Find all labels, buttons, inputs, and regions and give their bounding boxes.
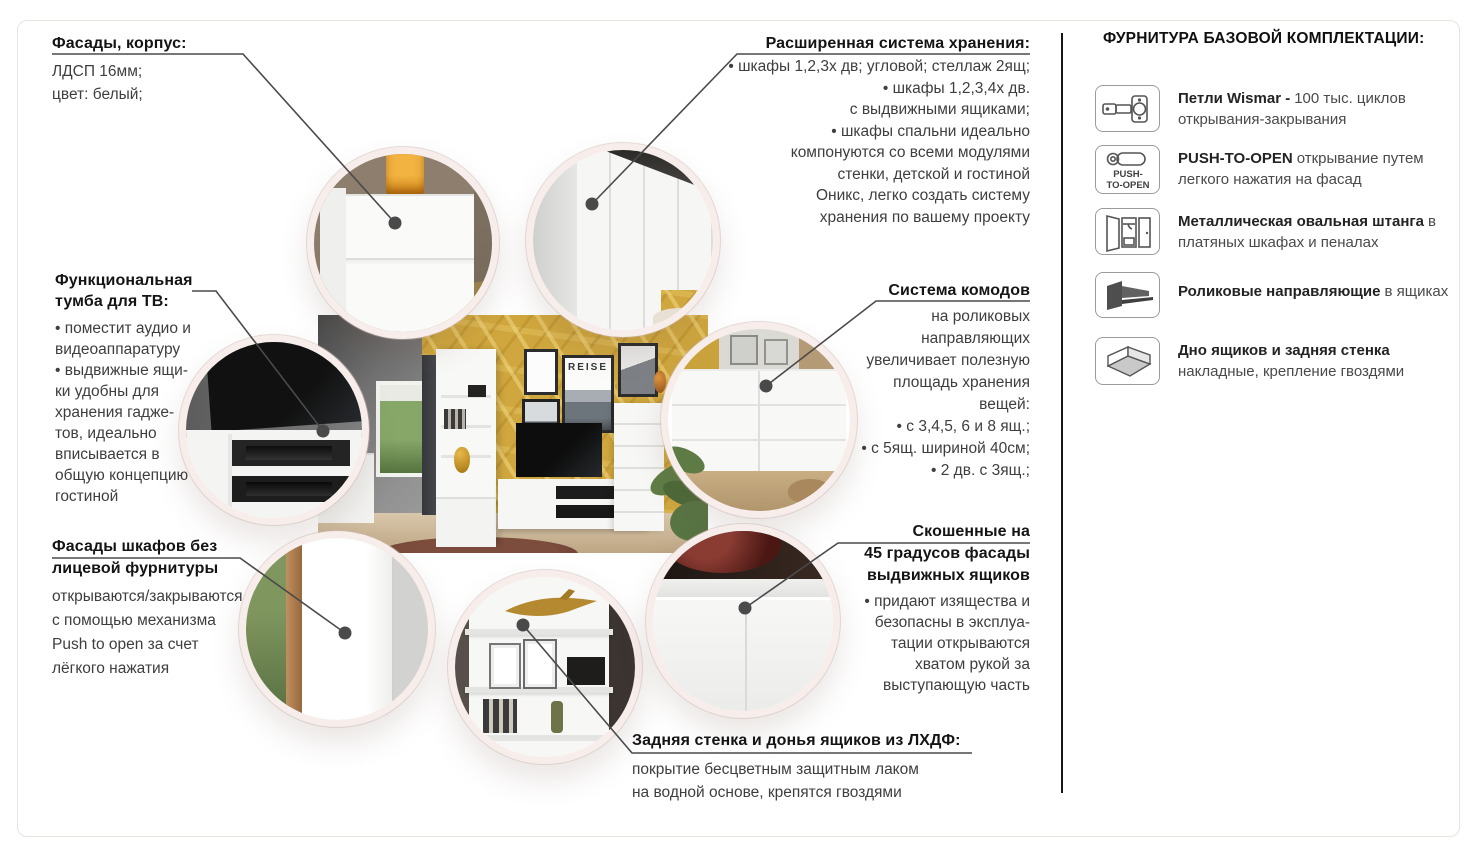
- callout-text-line: ЛДСП 16мм;: [52, 60, 302, 83]
- c1-right-edge: [474, 154, 492, 332]
- c1-side-panel: [320, 188, 346, 332]
- callout-text-line: вписывается в: [55, 444, 240, 465]
- c6-books: [483, 699, 517, 733]
- facade-detail-circle: [307, 147, 499, 339]
- panel-item-rollers: Роликовые направляющиев ящиках: [1178, 281, 1466, 302]
- callout-beveled: Скошенные на 45 градусов фасады выдвижны…: [800, 521, 1030, 696]
- photo-window: [376, 381, 428, 477]
- push-icon-label-1: PUSH-: [1113, 169, 1143, 180]
- callout-push-title-2: лицевой фурнитуры: [52, 558, 287, 580]
- poster-small-1: [524, 349, 558, 395]
- c4-basket: [788, 479, 832, 503]
- panel-item-drawer-bottom: Дно ящиков и задняя стенканакладные, кре…: [1178, 340, 1466, 382]
- callout-text-line: • придают изящества и: [800, 591, 1030, 612]
- c1-dresser-front: [346, 194, 474, 334]
- c6-green-bottle: [551, 701, 563, 733]
- callout-text-line: открываются/закрываются: [52, 585, 287, 609]
- c2-wall: [533, 150, 577, 330]
- panel-item-bold: Роликовые направляющие: [1178, 283, 1381, 300]
- photo-tv: [516, 423, 602, 477]
- photo-bookshelf: [436, 349, 496, 545]
- callout-text-line: тов, идеально: [55, 423, 240, 444]
- drawer-bottom-icon: [1095, 337, 1160, 385]
- callout-text-line: стенки, детской и гостиной: [690, 164, 1030, 186]
- poster-reise: REISE: [562, 355, 614, 433]
- bookshelf-drawers: [436, 497, 496, 547]
- c1-amber-vase: [386, 150, 424, 196]
- callout-text-line: Push to open за счет: [52, 633, 287, 657]
- c5-door: [302, 538, 394, 720]
- photo-pampas-vase: [654, 371, 666, 393]
- callout-text-line: с помощью механизма: [52, 609, 287, 633]
- c4-frame-1: [730, 335, 758, 365]
- callout-storage-title: Расширенная система хранения:: [690, 33, 1030, 54]
- callout-text-line: на роликовых: [770, 306, 1030, 328]
- callout-tv-title-2: тумба для ТВ:: [55, 291, 240, 312]
- c6-shelf-c: [465, 735, 613, 741]
- callout-push-fronts: Фасады шкафов без лицевой фурнитуры откр…: [52, 536, 287, 681]
- panel-divider: [1061, 33, 1063, 793]
- photo-tall-chest: [614, 403, 664, 531]
- callout-commodes: Система комодов на роликовых направляющи…: [770, 280, 1030, 482]
- callout-text-line: • шкафы 1,2,3х дв; угловой; стеллаж 2ящ;: [690, 56, 1030, 78]
- callout-storage: Расширенная система хранения: • шкафы 1,…: [690, 33, 1030, 228]
- shelf-books: [444, 409, 466, 429]
- c6-dark-left: [455, 577, 469, 757]
- callout-text-line: направляющих: [770, 328, 1030, 350]
- callout-text-line: лёгкого нажатия: [52, 657, 287, 681]
- callout-beveled-title-1: Скошенные на: [800, 521, 1030, 543]
- callout-facades: Фасады, корпус: ЛДСП 16мм; цвет: белый;: [52, 33, 302, 106]
- panel-item-hinges: Петли Wismar -100 тыс. циклов открывания…: [1178, 88, 1466, 130]
- c3-shelf-1: [232, 440, 350, 466]
- c5-door-seam: [392, 538, 394, 720]
- gold-airplane-figurine: [499, 585, 603, 627]
- panel-item-push-to-open: PUSH-TO-OPENоткрывание путем легкого наж…: [1178, 148, 1466, 190]
- wardrobe-rod-icon: [1095, 208, 1160, 255]
- panel-item-rest: накладные, крепление гвоздями: [1178, 363, 1404, 380]
- callout-tv: Функциональная тумба для ТВ: • поместит …: [55, 270, 240, 507]
- callout-text-line: • 2 дв. с 3ящ.;: [770, 460, 1030, 482]
- callout-facades-title: Фасады, корпус:: [52, 33, 302, 54]
- panel-item-rod: Металлическая овальная штангав платяных …: [1178, 211, 1466, 253]
- callout-text-line: общую концепцию: [55, 465, 240, 486]
- callout-text-line: площадь хранения: [770, 372, 1030, 394]
- c6-black-box: [567, 657, 605, 685]
- callout-text-line: Оникс, легко создать систему: [690, 185, 1030, 207]
- shelf-gold-vase: [454, 447, 470, 473]
- callout-backwall: Задняя стенка и донья ящиков из ЛХДФ: по…: [632, 730, 1022, 804]
- callout-beveled-title-3: выдвижных ящиков: [800, 565, 1030, 587]
- panel-item-rest: в ящиках: [1385, 283, 1449, 300]
- room-photo: REISE: [318, 315, 708, 553]
- callout-text-line: хранения по вашему проекту: [690, 207, 1030, 229]
- panel-item-bold: Петли Wismar -: [1178, 90, 1290, 107]
- callout-text-line: видеоаппаратуру: [55, 339, 240, 360]
- callout-text-line: на водной основе, крепятся гвоздями: [632, 781, 1022, 804]
- callout-text-line: ки удобны для: [55, 381, 240, 402]
- callout-backwall-title: Задняя стенка и донья ящиков из ЛХДФ:: [632, 730, 1022, 751]
- callout-text-line: вещей:: [770, 394, 1030, 416]
- callout-text-line: тации открываются: [800, 633, 1030, 654]
- callout-push-title-1: Фасады шкафов без: [52, 536, 287, 558]
- c6-certificate-2: [523, 639, 557, 689]
- panel-item-bold: Металлическая овальная штанга: [1178, 213, 1424, 230]
- callout-text-line: • шкафы спальни идеально: [690, 121, 1030, 143]
- callout-text-line: безопасны в эксплуа-: [800, 612, 1030, 633]
- callout-text-line: • шкафы 1,2,3,4х дв.: [690, 78, 1030, 100]
- shelving-detail-circle: [448, 570, 642, 764]
- c5-wood-strip: [286, 538, 302, 720]
- callout-text-line: • с 5ящ. шириной 40см;: [770, 438, 1030, 460]
- callout-text-line: • выдвижные ящи-: [55, 360, 240, 381]
- c6-certificate-1: [489, 643, 521, 689]
- panel-item-bold: Дно ящиков и задняя стенка: [1178, 340, 1466, 361]
- poster-reise-text: REISE: [565, 362, 611, 373]
- callout-tv-title-1: Функциональная: [55, 270, 240, 291]
- callout-text-line: хранения гадже-: [55, 402, 240, 423]
- callout-text-line: • поместит аудио и: [55, 318, 240, 339]
- callout-commodes-title: Система комодов: [770, 280, 1030, 301]
- callout-text-line: цвет: белый;: [52, 83, 302, 106]
- panel-title: ФУРНИТУРА БАЗОВОЙ КОМПЛЕКТАЦИИ:: [1103, 30, 1463, 48]
- hinge-icon: [1095, 85, 1160, 132]
- c3-shelf-2: [232, 476, 350, 502]
- callout-text-line: выступающую часть: [800, 675, 1030, 696]
- push-to-open-icon: PUSH- TO-OPEN: [1095, 145, 1160, 194]
- callout-text-line: гостиной: [55, 486, 240, 507]
- callout-text-line: хватом рукой за: [800, 654, 1030, 675]
- callout-text-line: компонуются со всеми модулями: [690, 142, 1030, 164]
- push-icon-label-2: TO-OPEN: [1106, 180, 1149, 191]
- poster-small-3: [618, 343, 658, 397]
- roller-slides-icon: [1095, 272, 1160, 318]
- callout-text-line: • с 3,4,5, 6 и 8 ящ.;: [770, 416, 1030, 438]
- callout-beveled-title-2: 45 градусов фасады: [800, 543, 1030, 565]
- shelf-black-box: [468, 385, 486, 397]
- callout-text-line: увеличивает полезную: [770, 350, 1030, 372]
- panel-item-bold: PUSH-TO-OPEN: [1178, 150, 1293, 167]
- callout-text-line: покрытие бесцветным защитным лаком: [632, 758, 1022, 781]
- infographic-page: { "colors": { "accent_wall": "#d0a73e", …: [0, 0, 1477, 856]
- callout-text-line: с выдвижными ящиками;: [690, 99, 1030, 121]
- c6-shelf-a: [465, 629, 613, 635]
